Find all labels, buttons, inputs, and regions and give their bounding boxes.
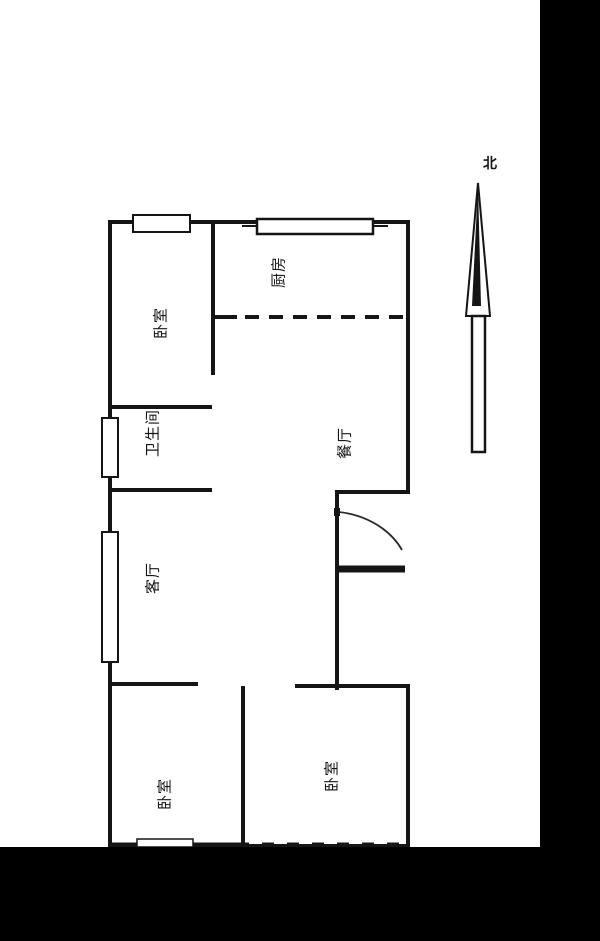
north-label: 北 bbox=[483, 153, 497, 173]
matte-bottom bbox=[0, 847, 600, 941]
room-label-living-room: 客厅 bbox=[142, 562, 163, 594]
window-kitchen-top bbox=[257, 219, 373, 234]
windows bbox=[102, 215, 406, 847]
floor-plan-image: 卧室 厨房 卫生间 餐厅 客厅 卧室 卧室 北 bbox=[0, 0, 600, 941]
matte-right bbox=[540, 0, 600, 941]
entry-door bbox=[334, 508, 402, 550]
window-bedroom-sw-bottom bbox=[137, 839, 193, 847]
window-bedroom-nw-top bbox=[133, 215, 190, 232]
north-arrow-shaft bbox=[472, 316, 485, 452]
room-label-bedroom-northwest: 卧室 bbox=[150, 307, 171, 339]
room-label-bedroom-southeast: 卧室 bbox=[321, 760, 342, 792]
door-swing-arc-icon bbox=[339, 512, 402, 550]
north-arrow-icon bbox=[466, 183, 490, 452]
window-living-left bbox=[102, 532, 118, 662]
floor-plan-drawing bbox=[0, 0, 600, 941]
window-bathroom-left bbox=[102, 418, 118, 477]
room-label-bedroom-southwest: 卧室 bbox=[154, 778, 175, 810]
room-label-bathroom: 卫生间 bbox=[142, 409, 163, 457]
room-label-kitchen: 厨房 bbox=[268, 256, 289, 288]
room-label-dining-room: 餐厅 bbox=[334, 427, 355, 459]
